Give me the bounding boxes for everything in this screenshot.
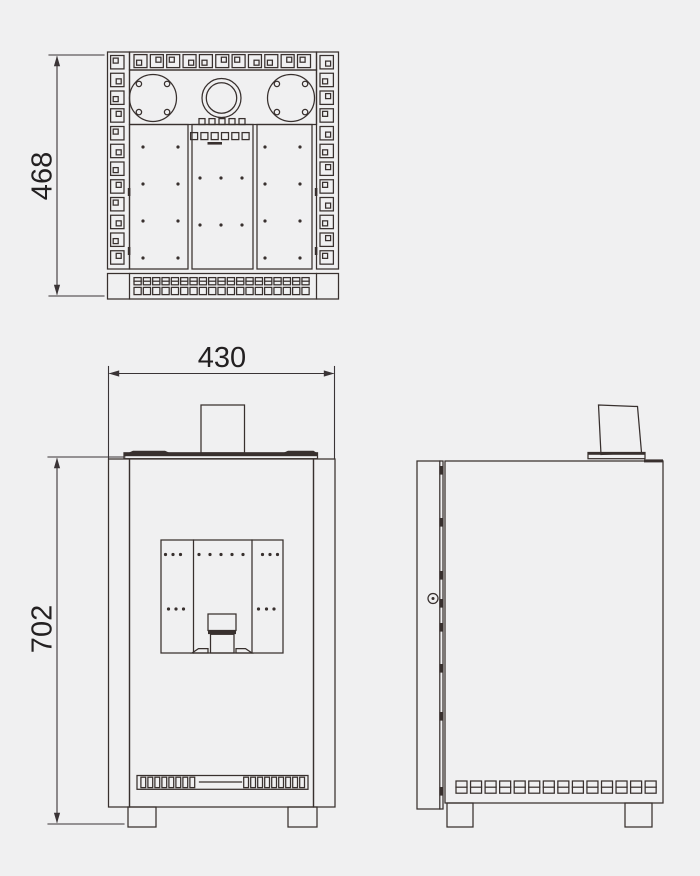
burner-bolt-holes [136,81,308,115]
burner-circle-center-inner [206,83,236,113]
center-punch-squares [191,119,250,140]
top-edge-dark-segment [644,459,663,462]
chute-wing-left [192,649,208,653]
side-foot-right [625,803,652,827]
arrowhead-down [54,285,60,296]
chute-divider-bar [208,631,236,635]
dimension-label-width: 430 [198,342,246,374]
panel-latch-mark [128,247,131,255]
front-view [109,405,336,827]
chute-lower-box [211,634,235,653]
panel-latch-mark [315,188,318,196]
chute-wing-right [236,649,252,653]
top-strip-vent-squares [134,55,311,68]
side-chimney [599,405,642,455]
arrowhead-left [109,370,120,376]
dimension-depth: 468 [27,55,105,296]
panel-latch-mark [128,188,131,196]
technical-drawing: 468 430 702 [0,0,700,876]
arrowhead-up [54,56,60,67]
side-view [417,405,663,827]
front-chimney [201,405,245,453]
top-panel-screw-dots [141,145,301,259]
dimension-label-depth: 468 [27,152,59,200]
dimension-label-height: 702 [27,605,59,653]
side-column-vent-squares [111,56,334,265]
dimension-width: 430 [109,342,335,458]
chute-upper-box [208,614,236,631]
panel-latch-mark [315,247,318,255]
center-slot-mark [208,142,223,145]
front-foot-right [288,807,317,827]
top-view [108,52,339,299]
side-body [445,461,663,803]
burner-circle-center-outer [202,79,241,118]
door-lock-knob-center [432,597,435,600]
side-vent-squares [456,781,656,793]
base-vent-squares [134,278,309,295]
front-right-side-post [314,459,336,807]
dimension-height: 702 [27,457,126,824]
side-foot-left [447,803,473,827]
control-panel-dots [164,553,279,611]
arrowhead-down [54,813,60,824]
side-door-edge-strip [417,461,443,809]
control-panel [161,540,283,653]
front-foot-left [128,807,156,827]
top-panel-center [192,125,253,270]
arrowhead-right [324,370,335,376]
front-left-side-post [109,459,130,807]
arrowhead-up [54,458,60,469]
